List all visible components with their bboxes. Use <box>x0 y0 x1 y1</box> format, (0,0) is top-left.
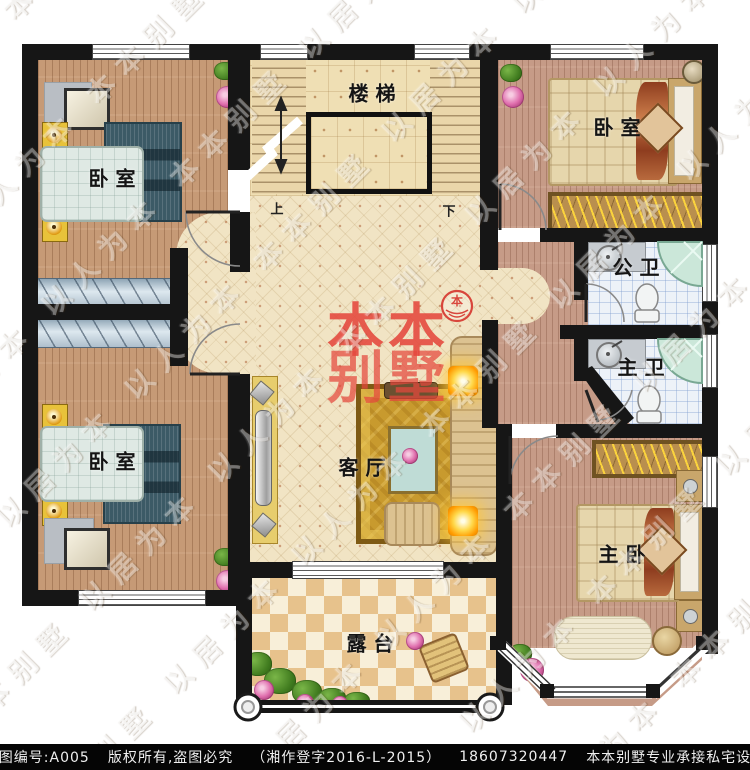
lamp-icon <box>683 609 698 624</box>
wall-terrace-left <box>236 562 252 705</box>
lamp-icon <box>46 127 62 143</box>
stair-void <box>306 112 432 194</box>
company-slogan: 本本别墅专业承接私宅设计 <box>586 747 750 767</box>
wall-bedroom1-stair <box>228 44 250 170</box>
lamp-icon <box>46 409 62 425</box>
label-stairs: 楼梯 <box>342 78 403 107</box>
window <box>550 44 644 60</box>
wall-stub <box>230 212 250 272</box>
plant-icon <box>500 64 522 82</box>
wall-between-baths <box>560 325 702 339</box>
lamp-icon <box>683 479 698 494</box>
label-stairs-up: 上 <box>270 199 283 218</box>
label-bedroom-top-left: 卧室 <box>82 163 143 192</box>
nightstand <box>676 470 704 502</box>
registration-text: （湘作登字2016-L-2015） <box>251 747 441 767</box>
floor-plan-page: 本 楼梯 卧室 卧室 公卫 主卫 卧室 客厅 主卧 露台 上 下 本本 别墅 本… <box>0 0 750 770</box>
sofa-single <box>384 502 440 546</box>
wall-stair-bedroom-right <box>480 44 498 270</box>
label-living-room: 客厅 <box>332 452 393 481</box>
wall-bedroom2-living <box>228 374 250 592</box>
window <box>702 334 718 388</box>
flower-icon <box>502 86 524 108</box>
stair-treads-left <box>252 58 306 194</box>
label-stairs-down: 下 <box>442 201 455 220</box>
brand-watermark-line2: 别墅 <box>327 355 449 402</box>
stair-treads-right <box>430 58 480 194</box>
phone-number: 18607320447 <box>459 749 568 765</box>
wall-master-bath-left <box>574 339 588 381</box>
flower-icon <box>520 658 544 682</box>
label-bedroom-bottom-left: 卧室 <box>82 446 143 475</box>
wall-master-top <box>556 424 702 438</box>
window <box>414 44 470 60</box>
terrace-glass-door <box>292 561 444 579</box>
window <box>78 590 206 606</box>
wall-living-corridor <box>482 320 498 428</box>
label-guest-bath: 公卫 <box>606 252 667 281</box>
wall-guest-bath-left <box>574 242 588 300</box>
tv-icon <box>255 410 272 506</box>
floor-lamp-icon <box>448 506 478 536</box>
footer-bar: 本图编号:A005 版权所有,盗图必究 （湘作登字2016-L-2015） 18… <box>0 744 750 770</box>
flowerpot-icon <box>406 632 424 650</box>
nightstand <box>676 600 704 632</box>
flower-icon <box>254 680 274 700</box>
lamp-icon <box>46 503 62 519</box>
label-terrace: 露台 <box>340 628 401 657</box>
wall-left <box>22 44 38 606</box>
label-master-bath: 主卫 <box>611 352 672 381</box>
window <box>260 44 308 60</box>
window <box>702 244 718 302</box>
railing-line <box>258 705 478 708</box>
wall-between-left-bedrooms <box>38 304 178 320</box>
round-table-icon <box>652 626 682 656</box>
wall-master-left <box>496 424 512 705</box>
master-rug <box>554 616 652 660</box>
floor-lamp-icon <box>448 366 478 396</box>
wall-above-guest-bath <box>540 228 702 242</box>
label-master-bedroom: 主卧 <box>592 539 653 568</box>
wardrobe-strip-bottom <box>38 318 176 348</box>
corridor-tile-bulge <box>482 268 550 324</box>
table-flower-icon <box>402 448 418 464</box>
label-bedroom-top-right: 卧室 <box>587 112 648 141</box>
plan-number: 本图编号:A005 <box>0 747 90 767</box>
copyright-text: 版权所有,盗图必究 <box>108 747 233 767</box>
window <box>92 44 190 60</box>
side-table <box>64 528 110 570</box>
window <box>702 456 718 508</box>
